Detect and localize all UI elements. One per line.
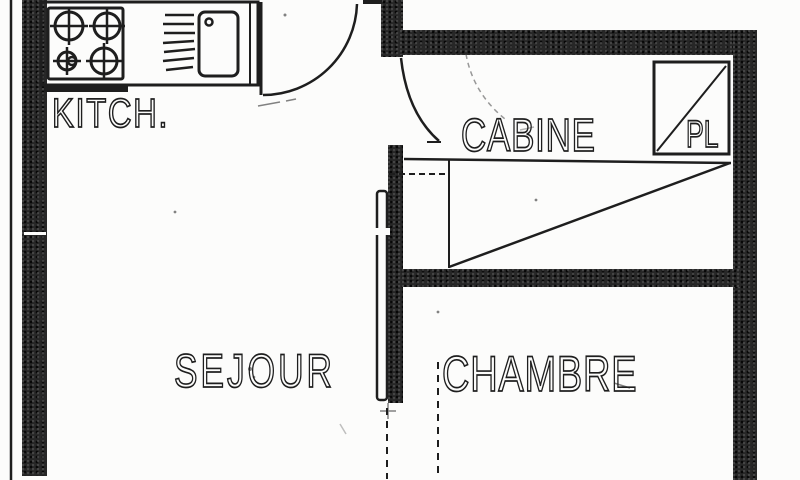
top-wall-stub	[363, 0, 382, 4]
entry-door	[261, 2, 357, 95]
room-label-sejour: SEJOUR	[174, 347, 335, 394]
floor-plan-canvas: KITCH. CABINE PL SEJOUR CHAMBRE	[0, 0, 800, 480]
room-opening-dashes	[387, 362, 438, 479]
closet-diagonal-icon	[449, 163, 730, 267]
partition-break	[374, 228, 390, 235]
cabine-wardrobe	[389, 159, 731, 268]
dish-drainer-icon	[163, 15, 195, 70]
partition-panel	[377, 191, 387, 400]
plan-linework	[0, 0, 800, 480]
room-label-chambre: CHAMBRE	[442, 349, 637, 399]
room-label-cabine: CABINE	[461, 112, 596, 158]
room-label-kitchen: KITCH.	[52, 93, 169, 134]
room-label-pl-closet: PL	[686, 116, 719, 154]
door-swing-arc-icon	[263, 4, 357, 95]
kitchen-fixtures	[41, 2, 258, 92]
sink-basin-icon	[199, 12, 238, 76]
door-swing-arc-icon	[401, 58, 439, 141]
glazed-partition	[374, 191, 390, 400]
stove-burners-icon	[48, 7, 125, 79]
kitchen-counter-outline	[41, 2, 258, 85]
